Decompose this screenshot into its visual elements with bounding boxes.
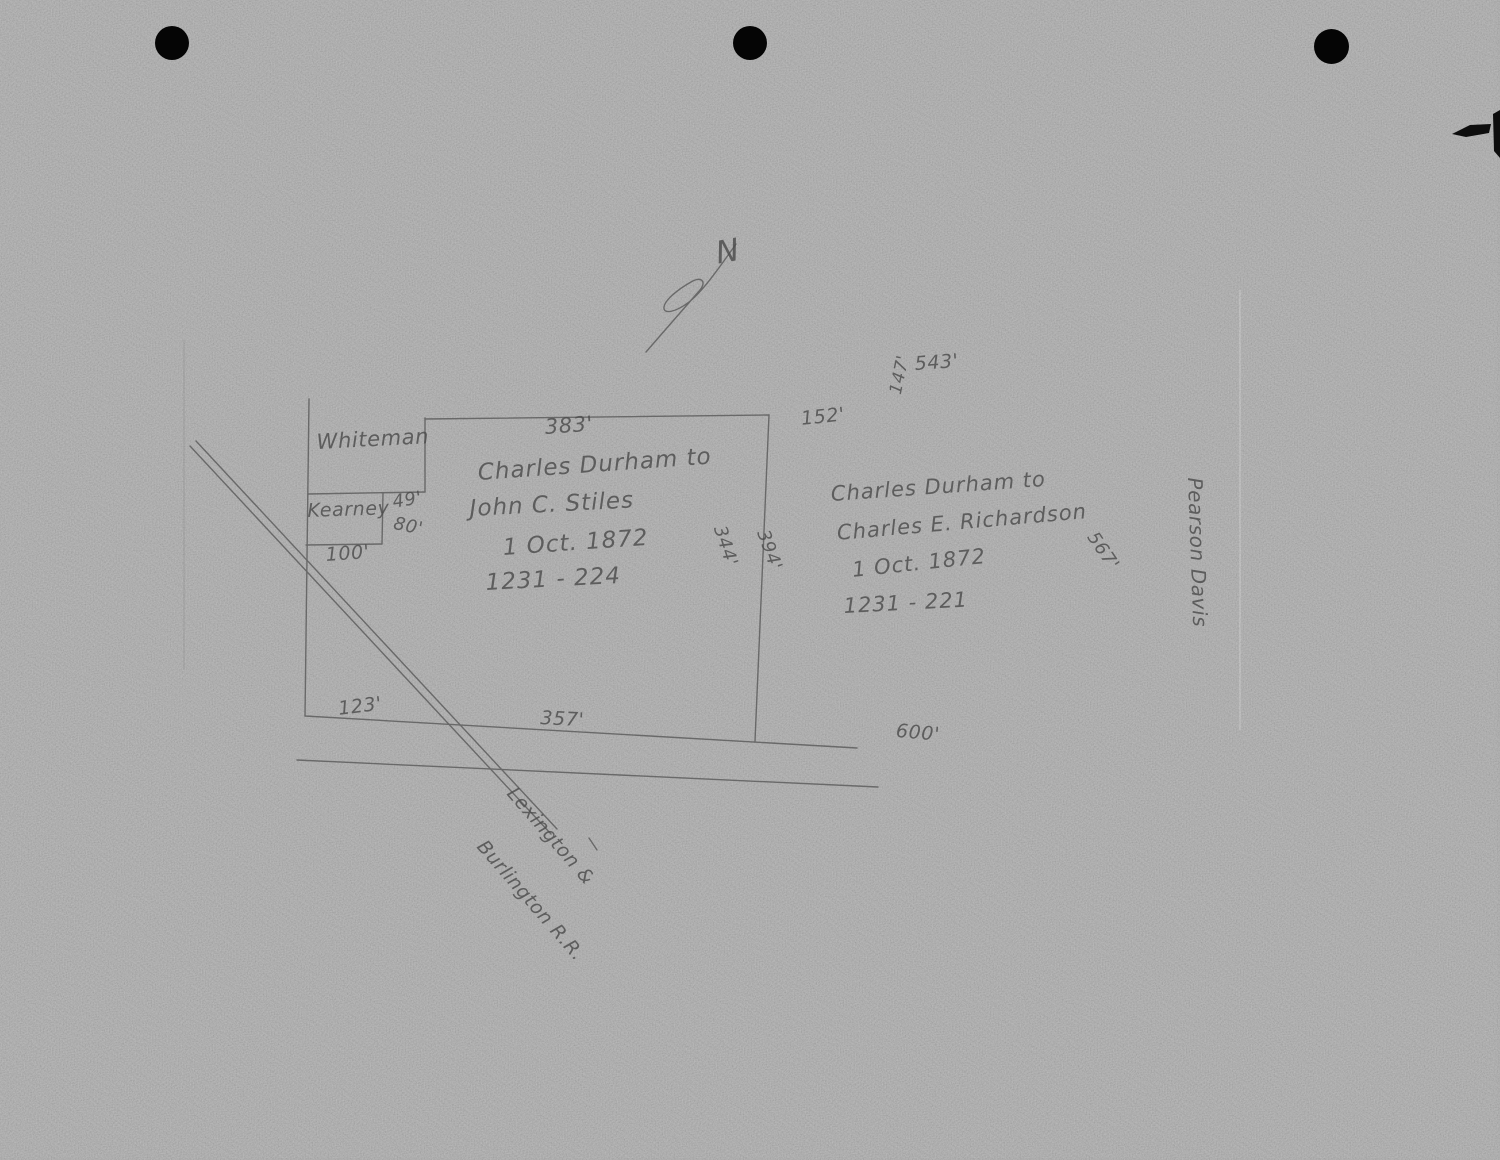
measure-north-side: 383' — [544, 412, 594, 439]
measure-kearney-south: 100' — [325, 541, 370, 566]
owner-label-kearney: Kearney — [307, 497, 390, 522]
north-boundary-line — [425, 415, 769, 419]
measure-upper-right-a: 152' — [800, 403, 846, 429]
margin-edge-mark — [1493, 110, 1500, 158]
measure-south-side: 357' — [540, 707, 585, 731]
plat-line-drawing — [0, 0, 1500, 1160]
west-boundary-line — [305, 399, 309, 716]
railroad-tick-mark — [589, 838, 597, 850]
margin-arrow-mark — [1452, 124, 1491, 137]
measure-south-extension: 600' — [895, 720, 941, 746]
east-boundary-line — [755, 415, 769, 741]
scanned-plat-page: N Whiteman Kearney Pearson Davis 383' 49… — [0, 0, 1500, 1160]
road-line — [297, 760, 878, 787]
measure-upper-right-b: 543' — [914, 350, 959, 375]
